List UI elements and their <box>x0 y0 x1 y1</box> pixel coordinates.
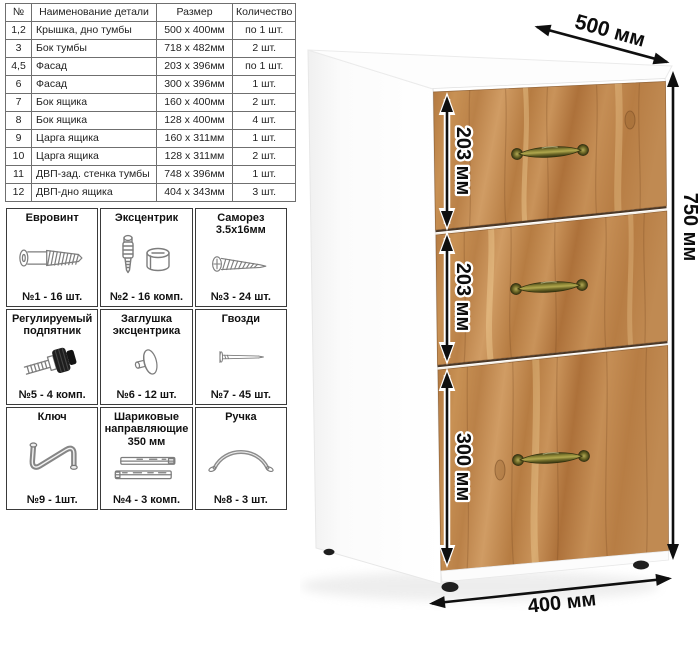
part-qty: 2 шт. <box>233 40 296 58</box>
hardware-item-foot: Регулируемый подпятник №5 - 4 комп. <box>6 309 98 405</box>
cabinet-svg: 500 мм 750 мм 400 мм 203 мм 203 мм <box>300 0 700 648</box>
cabinet-foot <box>442 582 459 592</box>
table-row: 4,5 Фасад 203 х 396мм по 1 шт. <box>6 58 296 76</box>
hardware-title: Саморез 3.5х16мм <box>197 212 285 237</box>
col-header-num: № <box>6 4 32 22</box>
hardware-item-screw: Саморез 3.5х16мм №3 - 24 шт. <box>195 208 287 307</box>
table-row: 1,2 Крышка, дно тумбы 500 х 400мм по 1 ш… <box>6 22 296 40</box>
eccentric-cam-icon <box>106 232 186 284</box>
part-num: 8 <box>6 112 32 130</box>
part-size: 160 х 400мм <box>157 94 233 112</box>
hex-key-icon <box>17 435 87 483</box>
part-qty: 3 шт. <box>233 184 296 202</box>
table-row: 6 Фасад 300 х 396мм 1 шт. <box>6 76 296 94</box>
hardware-count: №7 - 45 шт. <box>211 389 271 401</box>
part-name: Фасад <box>32 58 157 76</box>
hardware-item-eurovint: Евровинт №1 - 16 шт. <box>6 208 98 307</box>
handle-icon <box>201 437 281 481</box>
cam-cap-icon <box>106 341 186 385</box>
dim-label-drawer-3: 300 мм <box>452 433 474 502</box>
part-qty: по 1 шт. <box>233 22 296 40</box>
part-qty: 2 шт. <box>233 94 296 112</box>
part-size: 128 х 311мм <box>157 148 233 166</box>
parts-table: № Наименование детали Размер Количество … <box>5 3 296 202</box>
hardware-item-cam-cap: Заглушка эксцентрика №6 - 12 шт. <box>100 309 192 405</box>
table-row: 12 ДВП-дно ящика 404 х 343мм 3 шт. <box>6 184 296 202</box>
hardware-title: Ручка <box>225 411 256 423</box>
part-num: 4,5 <box>6 58 32 76</box>
col-header-size: Размер <box>157 4 233 22</box>
part-num: 10 <box>6 148 32 166</box>
dim-label-drawer-1: 203 мм <box>452 127 474 196</box>
hardware-count: №4 - 3 комп. <box>113 494 180 506</box>
hardware-item-nails: Гвозди №7 - 45 шт. <box>195 309 287 405</box>
hardware-title: Шариковые направляющие 350 мм <box>102 411 190 448</box>
hardware-title: Регулируемый подпятник <box>8 313 96 338</box>
hardware-grid: Евровинт №1 - 16 шт. Эксцентрик <box>6 208 287 508</box>
cabinet-side-panel <box>308 50 441 584</box>
part-name: ДВП-дно ящика <box>32 184 157 202</box>
hardware-count: №5 - 4 комп. <box>19 389 86 401</box>
dim-label-drawer-2: 203 мм <box>452 263 474 332</box>
hardware-item-handle: Ручка №8 - 3 шт. <box>195 407 287 510</box>
hardware-count: №6 - 12 шт. <box>116 389 176 401</box>
part-size: 748 х 396мм <box>157 166 233 184</box>
hardware-count: №2 - 16 комп. <box>110 291 183 303</box>
part-size: 500 х 400мм <box>157 22 233 40</box>
self-tapping-screw-icon <box>201 244 281 284</box>
table-row: 7 Бок ящика 160 х 400мм 2 шт. <box>6 94 296 112</box>
hardware-count: №8 - 3 шт. <box>214 494 268 506</box>
euro-screw-icon <box>12 236 92 280</box>
hardware-title: Эксцентрик <box>115 212 178 224</box>
part-num: 11 <box>6 166 32 184</box>
part-qty: 4 шт. <box>233 112 296 130</box>
part-size: 718 х 482мм <box>157 40 233 58</box>
part-size: 203 х 396мм <box>157 58 233 76</box>
nail-icon <box>201 340 281 374</box>
hardware-title: Заглушка эксцентрика <box>102 313 190 338</box>
part-qty: 1 шт. <box>233 130 296 148</box>
hardware-title: Ключ <box>38 411 67 423</box>
hardware-count: №9 - 1шт. <box>27 494 78 506</box>
cabinet-foot <box>324 549 335 555</box>
part-name: Бок ящика <box>32 94 157 112</box>
part-name: Фасад <box>32 76 157 94</box>
hardware-item-eccentric: Эксцентрик №2 - 16 комп. <box>100 208 192 307</box>
part-name: Крышка, дно тумбы <box>32 22 157 40</box>
part-qty: 1 шт. <box>233 76 296 94</box>
hardware-title: Евровинт <box>26 212 79 224</box>
hardware-item-slides: Шариковые направляющие 350 мм №4 - 3 ком… <box>100 407 192 510</box>
part-qty: 2 шт. <box>233 148 296 166</box>
part-num: 6 <box>6 76 32 94</box>
dim-label-height: 750 мм <box>679 193 700 262</box>
table-row: 9 Царга ящика 160 х 311мм 1 шт. <box>6 130 296 148</box>
cabinet-foot <box>633 561 649 570</box>
col-header-qty: Количество <box>233 4 296 22</box>
part-num: 3 <box>6 40 32 58</box>
cabinet-drawing: 500 мм 750 мм 400 мм 203 мм 203 мм <box>300 0 700 648</box>
table-row: 10 Царга ящика 128 х 311мм 2 шт. <box>6 148 296 166</box>
part-qty: 1 шт. <box>233 166 296 184</box>
part-size: 300 х 396мм <box>157 76 233 94</box>
hardware-title: Гвозди <box>222 313 260 325</box>
dimension-height: 750 мм <box>667 71 700 560</box>
part-name: Царга ящика <box>32 148 157 166</box>
adjustable-foot-icon <box>12 340 92 386</box>
table-row: 11 ДВП-зад. стенка тумбы 748 х 396мм 1 ш… <box>6 166 296 184</box>
part-name: Царга ящика <box>32 130 157 148</box>
part-qty: по 1 шт. <box>233 58 296 76</box>
part-name: Бок тумбы <box>32 40 157 58</box>
part-name: ДВП-зад. стенка тумбы <box>32 166 157 184</box>
part-size: 160 х 311мм <box>157 130 233 148</box>
part-size: 404 х 343мм <box>157 184 233 202</box>
part-num: 9 <box>6 130 32 148</box>
part-num: 1,2 <box>6 22 32 40</box>
part-size: 128 х 400мм <box>157 112 233 130</box>
table-header-row: № Наименование детали Размер Количество <box>6 4 296 22</box>
table-row: 3 Бок тумбы 718 х 482мм 2 шт. <box>6 40 296 58</box>
table-row: 8 Бок ящика 128 х 400мм 4 шт. <box>6 112 296 130</box>
dimension-width: 500 мм <box>533 10 671 68</box>
ball-slides-icon <box>106 453 186 489</box>
part-num: 12 <box>6 184 32 202</box>
col-header-name: Наименование детали <box>32 4 157 22</box>
part-num: 7 <box>6 94 32 112</box>
hardware-item-key: Ключ №9 - 1шт. <box>6 407 98 510</box>
hardware-count: №1 - 16 шт. <box>22 291 82 303</box>
part-name: Бок ящика <box>32 112 157 130</box>
hardware-count: №3 - 24 шт. <box>211 291 271 303</box>
